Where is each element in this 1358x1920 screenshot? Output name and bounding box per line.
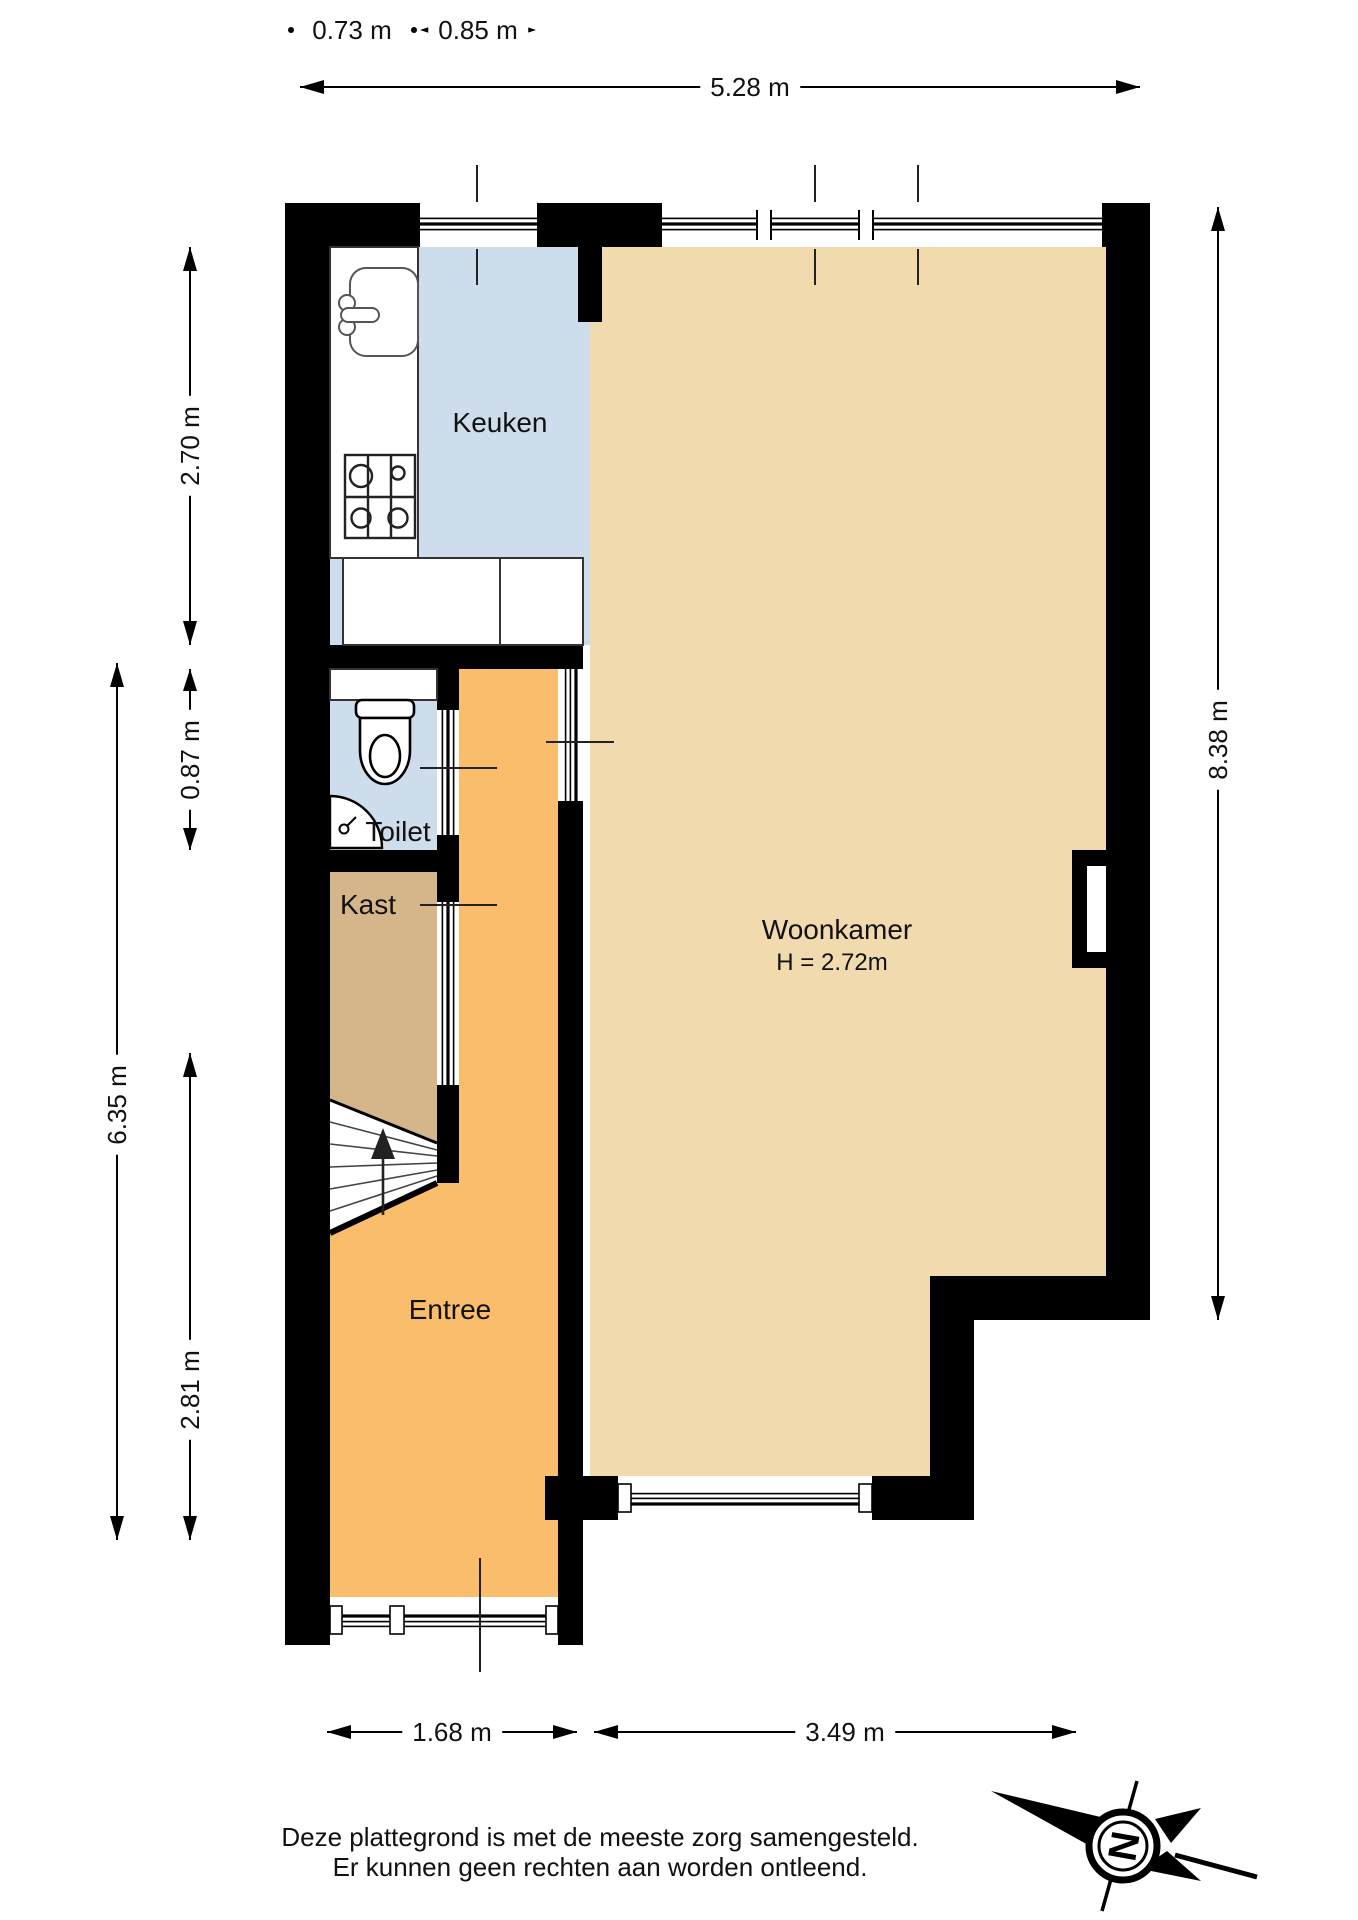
keuken-window	[420, 203, 537, 247]
wall-right	[1106, 203, 1150, 1320]
woonkamer-door	[558, 669, 583, 801]
wall-stub-keuken	[578, 247, 602, 322]
room-label-entree: Entree	[409, 1296, 492, 1324]
wall-bottom-woonkamer-right	[872, 1476, 974, 1520]
wall-kast-east-bottom	[437, 1085, 459, 1183]
wall-keuken-bottom	[330, 645, 583, 669]
wall-bottom-entree-right	[558, 1597, 583, 1645]
disclaimer-line-1: Deze plattegrond is met de meeste zorg s…	[281, 1822, 918, 1853]
disclaimer-line-2: Er kunnen geen rechten aan worden ontlee…	[333, 1852, 868, 1883]
window-mullion	[756, 210, 772, 240]
stove-icon	[345, 455, 415, 538]
floorplan-drawing: N	[0, 0, 1358, 1920]
kast-door	[437, 902, 459, 1085]
room-label-woonkamer: Woonkamer	[762, 916, 912, 944]
wall-step-horizontal	[930, 1276, 1150, 1320]
north-arrow-icon: N	[991, 1781, 1257, 1911]
toilet-shelf	[330, 669, 437, 700]
compass: N	[991, 1781, 1257, 1911]
dim-entree-depth: 2.81 m	[177, 1340, 203, 1440]
window-mullion	[858, 210, 874, 240]
sink-icon	[339, 268, 418, 356]
dim-woonkamer-width: 3.49 m	[795, 1719, 895, 1745]
room-label-woonkamer-height: H = 2.72m	[776, 951, 887, 975]
wall-toilet-kast-between	[437, 835, 459, 902]
entree-door-window	[330, 1597, 558, 1645]
counter-bottom-1	[343, 558, 500, 645]
dim-entree-width: 1.68 m	[402, 1719, 502, 1745]
dim-toilet-depth: 0.87 m	[177, 710, 203, 810]
dim-top-window: 0.85 m	[428, 17, 528, 43]
woonkamer-top-window	[662, 203, 1102, 247]
dim-top-left-small: 0.73 m	[302, 17, 402, 43]
dim-left-lower-total: 6.35 m	[104, 1055, 130, 1155]
wall-entree-east	[558, 801, 583, 1645]
wall-toilet-kast-divider	[330, 850, 437, 872]
room-label-kast: Kast	[340, 891, 396, 919]
dim-keuken-depth: 2.70 m	[177, 396, 203, 496]
dim-top-total: 5.28 m	[700, 74, 800, 100]
woonkamer-bottom-window	[618, 1476, 872, 1520]
dim-right-total: 8.38 m	[1205, 690, 1231, 790]
room-label-keuken: Keuken	[453, 409, 548, 437]
wall-toilet-east-top	[437, 669, 459, 710]
toilet-icon	[356, 700, 414, 784]
wall-top-pier	[537, 203, 662, 247]
chimney-slot	[1087, 866, 1106, 952]
toilet-door	[437, 710, 459, 835]
floorplan-canvas: N Keuken Toilet Kast Woonkamer H = 2.72m…	[0, 0, 1358, 1920]
room-label-toilet: Toilet	[365, 818, 430, 846]
wall-bottom-entree-left	[285, 1597, 330, 1645]
wall-left	[285, 203, 330, 1645]
counter-bottom-2	[500, 558, 583, 645]
